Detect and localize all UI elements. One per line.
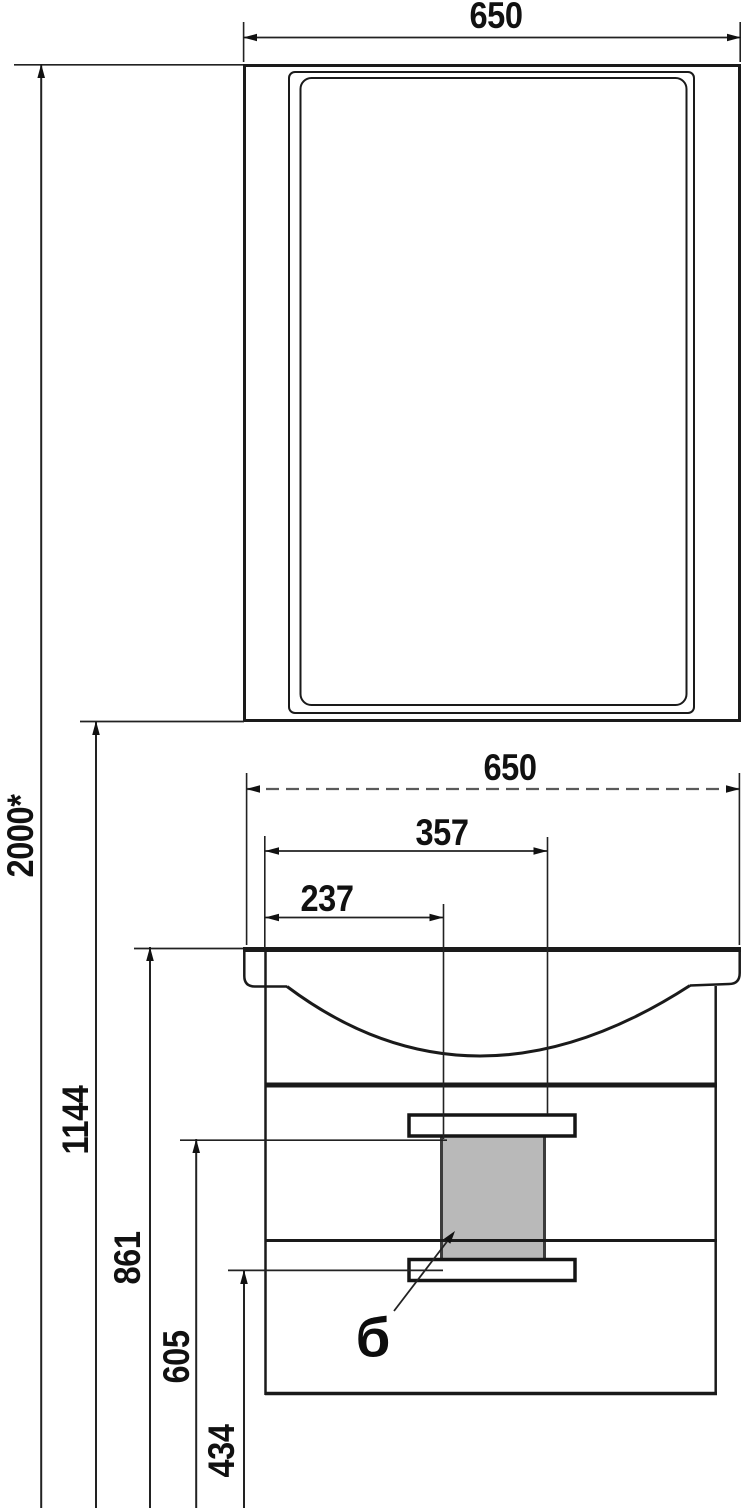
washbasin	[243, 950, 741, 1057]
arrow-left	[265, 914, 279, 921]
dim-siphon-bottom-height	[228, 1270, 443, 1508]
dim-label-mirror-width: 650	[469, 0, 522, 37]
arrow-up	[37, 64, 45, 78]
siphon-pipe	[440, 1137, 546, 1271]
mirror-mid-frame	[289, 72, 694, 713]
arrow-left	[243, 34, 257, 41]
arrow-up	[192, 1139, 200, 1153]
basin-right-profile	[690, 951, 740, 986]
arrow-up	[240, 1270, 248, 1284]
siphon-pipe-body	[440, 1137, 546, 1271]
dim-drain-left	[265, 836, 444, 1139]
arrow-right	[726, 785, 740, 792]
arrow-up	[92, 721, 100, 735]
dim-label-overall-height: 2000*	[0, 795, 42, 878]
dim-label-siphon-bottom-height: 434	[201, 1424, 243, 1477]
arrow-right	[430, 914, 444, 921]
callout-letter: б	[356, 1305, 391, 1370]
dim-mirror-bottom-height	[80, 721, 244, 1508]
mirror-outer-frame	[245, 66, 740, 721]
siphon-upper-flange	[409, 1115, 575, 1136]
arrow-left	[246, 785, 260, 792]
arrow-left	[265, 847, 279, 854]
dim-label-basin-top-height: 861	[107, 1231, 149, 1284]
technical-drawing: 650 650 357 237 2000* 1144 861 605 434 б	[0, 0, 744, 1508]
dim-label-siphon-top-height: 605	[156, 1330, 198, 1383]
arrow-right	[727, 34, 741, 41]
dim-label-drain-offset-right: 357	[415, 812, 468, 854]
dim-label-drain-offset-left: 237	[300, 878, 353, 920]
dim-overall-height	[14, 64, 243, 1508]
dim-label-mirror-bottom-height: 1144	[55, 1086, 97, 1155]
basin-bowl-curve	[287, 986, 690, 1057]
mirror-glass-edge	[301, 78, 687, 705]
mirror	[245, 66, 740, 721]
arrow-right	[534, 847, 548, 854]
dim-label-basin-width: 650	[483, 747, 536, 789]
